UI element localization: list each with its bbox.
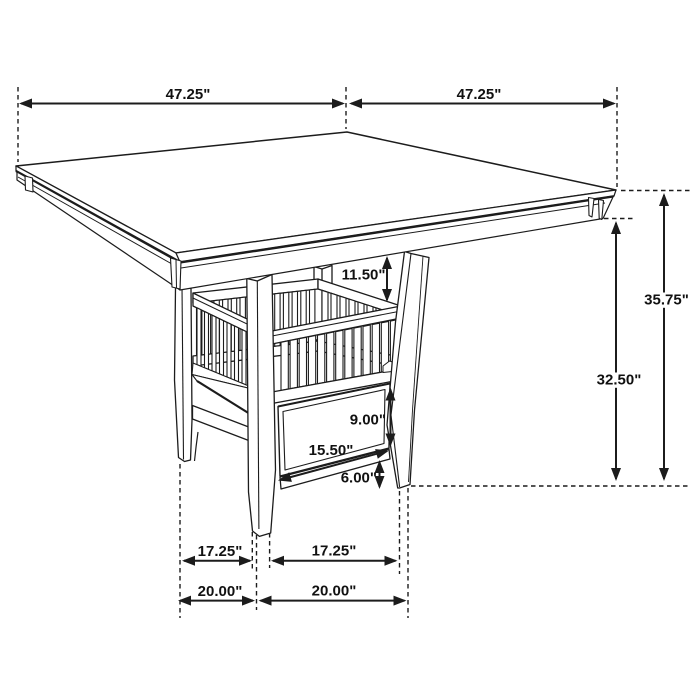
svg-text:35.75": 35.75" xyxy=(644,292,689,309)
svg-text:47.25": 47.25" xyxy=(166,86,211,103)
svg-text:17.25": 17.25" xyxy=(198,543,243,560)
svg-text:6.00": 6.00" xyxy=(341,470,377,487)
svg-text:9.00": 9.00" xyxy=(350,412,386,429)
svg-text:47.25": 47.25" xyxy=(457,86,502,103)
svg-text:11.50": 11.50" xyxy=(342,267,386,284)
svg-text:32.50": 32.50" xyxy=(597,372,642,389)
svg-text:20.00": 20.00" xyxy=(198,583,243,600)
svg-text:15.50": 15.50" xyxy=(309,442,354,459)
svg-text:17.25": 17.25" xyxy=(312,543,357,560)
svg-text:20.00": 20.00" xyxy=(312,583,357,600)
